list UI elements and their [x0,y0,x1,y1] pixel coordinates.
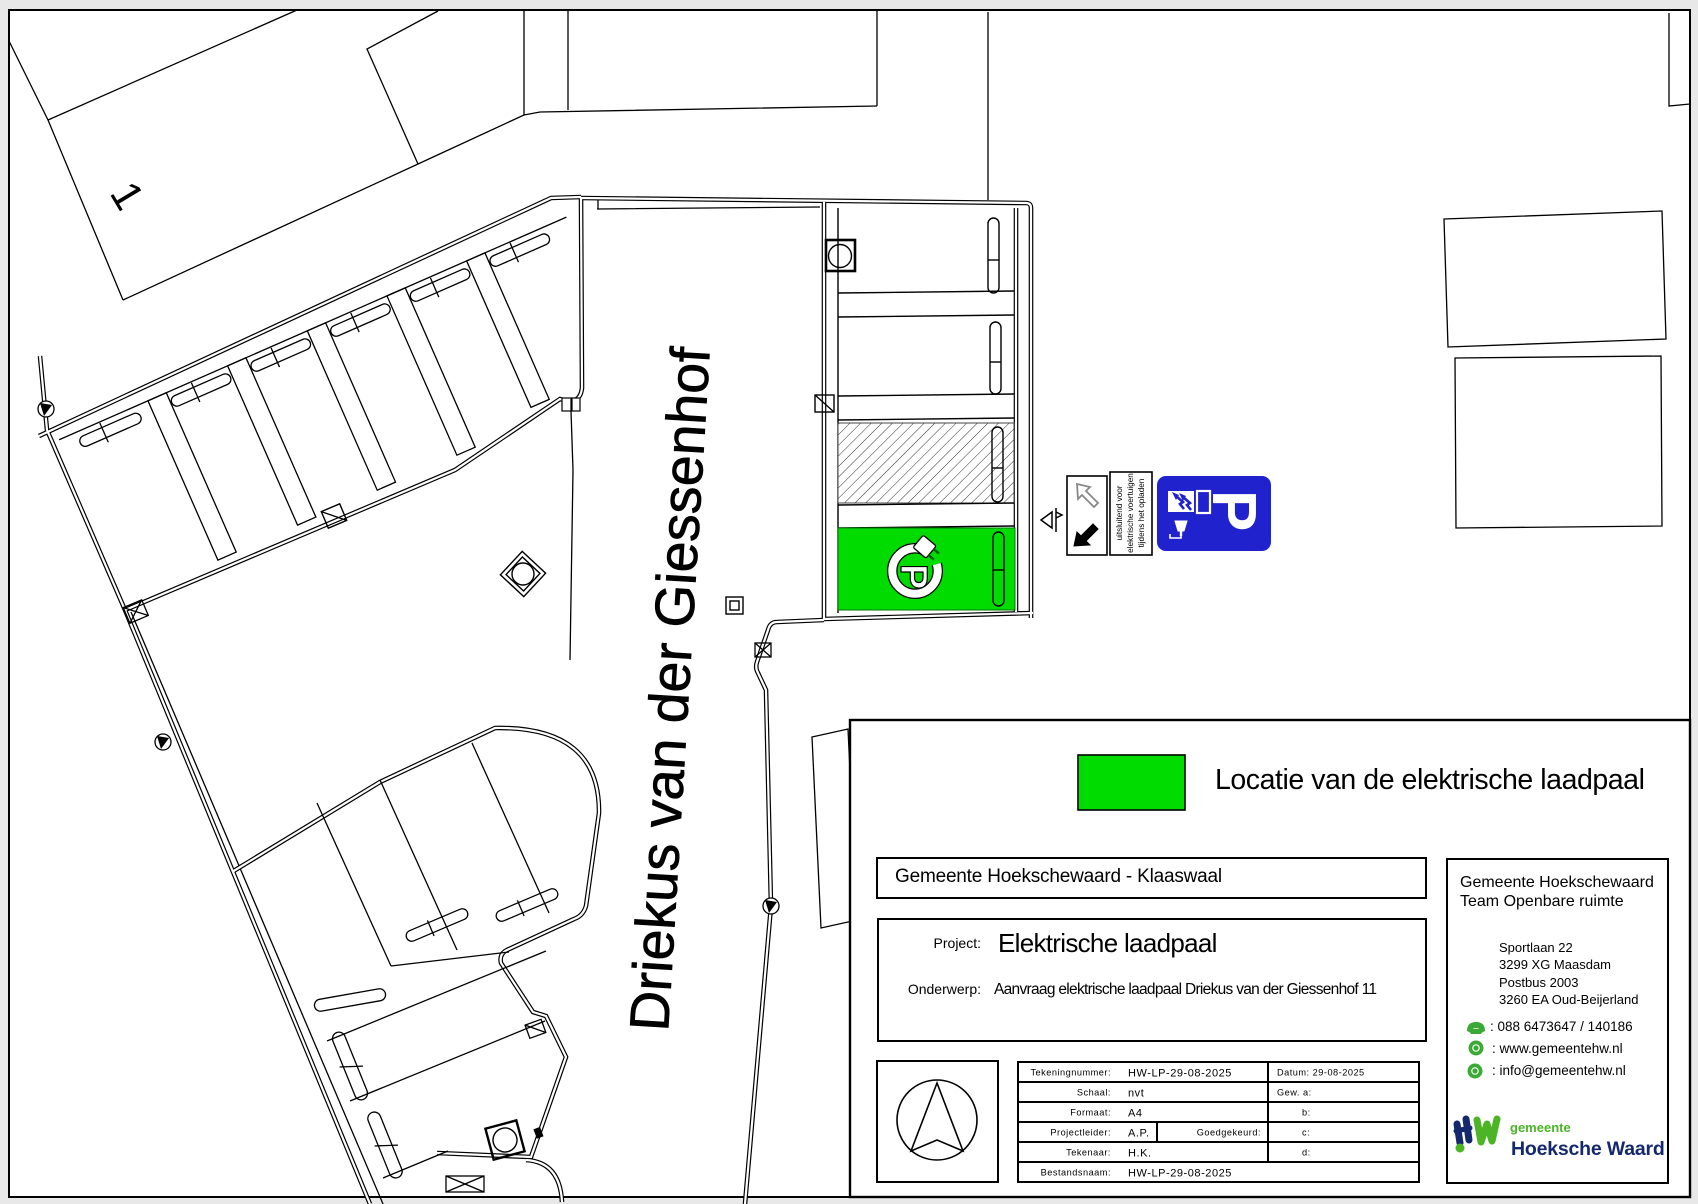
svg-text:Sportlaan 22: Sportlaan 22 [1499,940,1573,955]
svg-text:A.P.: A.P. [1128,1128,1150,1140]
svg-text:Hoeksche Waard: Hoeksche Waard [1511,1138,1665,1160]
svg-text:c:: c: [1302,1128,1310,1138]
svg-text:Elektrische laadpaal: Elektrische laadpaal [998,928,1217,958]
svg-text:A4: A4 [1128,1108,1143,1120]
svg-text:Gew. a:: Gew. a: [1277,1088,1312,1098]
svg-text:Formaat:: Formaat: [1070,1108,1111,1118]
svg-text:Gemeente Hoekschewaard - Klaas: Gemeente Hoekschewaard - Klaaswaal [895,866,1222,887]
svg-text:b:: b: [1302,1108,1311,1118]
svg-text:Datum: 29-08-2025: Datum: 29-08-2025 [1277,1068,1365,1078]
svg-text:Goedgekeurd:: Goedgekeurd: [1197,1128,1261,1138]
svg-text:Schaal:: Schaal: [1077,1088,1111,1098]
svg-text:Gemeente Hoekschewaard: Gemeente Hoekschewaard [1460,874,1654,891]
svg-text:Projectleider:: Projectleider: [1050,1128,1111,1138]
svg-text:: 088 6473647 / 140186: : 088 6473647 / 140186 [1490,1019,1633,1034]
svg-text:Aanvraag elektrische laadpaal: Aanvraag elektrische laadpaal Driekus va… [994,981,1376,998]
svg-text:Postbus 2003: Postbus 2003 [1499,975,1579,990]
svg-text:tijdens het opladen: tijdens het opladen [1137,478,1146,547]
svg-text:Team Openbare ruimte: Team Openbare ruimte [1460,893,1624,910]
svg-text:P: P [892,564,934,589]
svg-text:Onderwerp:: Onderwerp: [908,981,981,997]
svg-text:3260 EA Oud-Beijerland: 3260 EA Oud-Beijerland [1499,992,1638,1007]
svg-text:Project:: Project: [934,935,981,951]
svg-text:uitsluitend voor: uitsluitend voor [1115,485,1124,540]
svg-text:d:: d: [1302,1148,1311,1158]
svg-text:3299 XG Maasdam: 3299 XG Maasdam [1499,957,1611,972]
svg-text:HW-LP-29-08-2025: HW-LP-29-08-2025 [1128,1168,1232,1180]
svg-text:: www.gemeentehw.nl: : www.gemeentehw.nl [1492,1041,1623,1056]
svg-text:P: P [1199,490,1268,531]
svg-text:Locatie van de elektrische laa: Locatie van de elektrische laadpaal [1215,764,1644,796]
svg-text:gemeente: gemeente [1510,1120,1571,1135]
svg-text:HW-LP-29-08-2025: HW-LP-29-08-2025 [1128,1068,1232,1080]
svg-text:elektrische voertuigen: elektrische voertuigen [1126,473,1135,553]
svg-text:H.K.: H.K. [1128,1148,1152,1160]
svg-text:nvt: nvt [1128,1088,1144,1100]
svg-text:Tekeningnummer:: Tekeningnummer: [1030,1068,1111,1078]
svg-text:Bestandsnaam:: Bestandsnaam: [1041,1168,1111,1178]
svg-text:Tekenaar:: Tekenaar: [1066,1148,1111,1158]
svg-text:: info@gemeentehw.nl: : info@gemeentehw.nl [1492,1063,1626,1078]
